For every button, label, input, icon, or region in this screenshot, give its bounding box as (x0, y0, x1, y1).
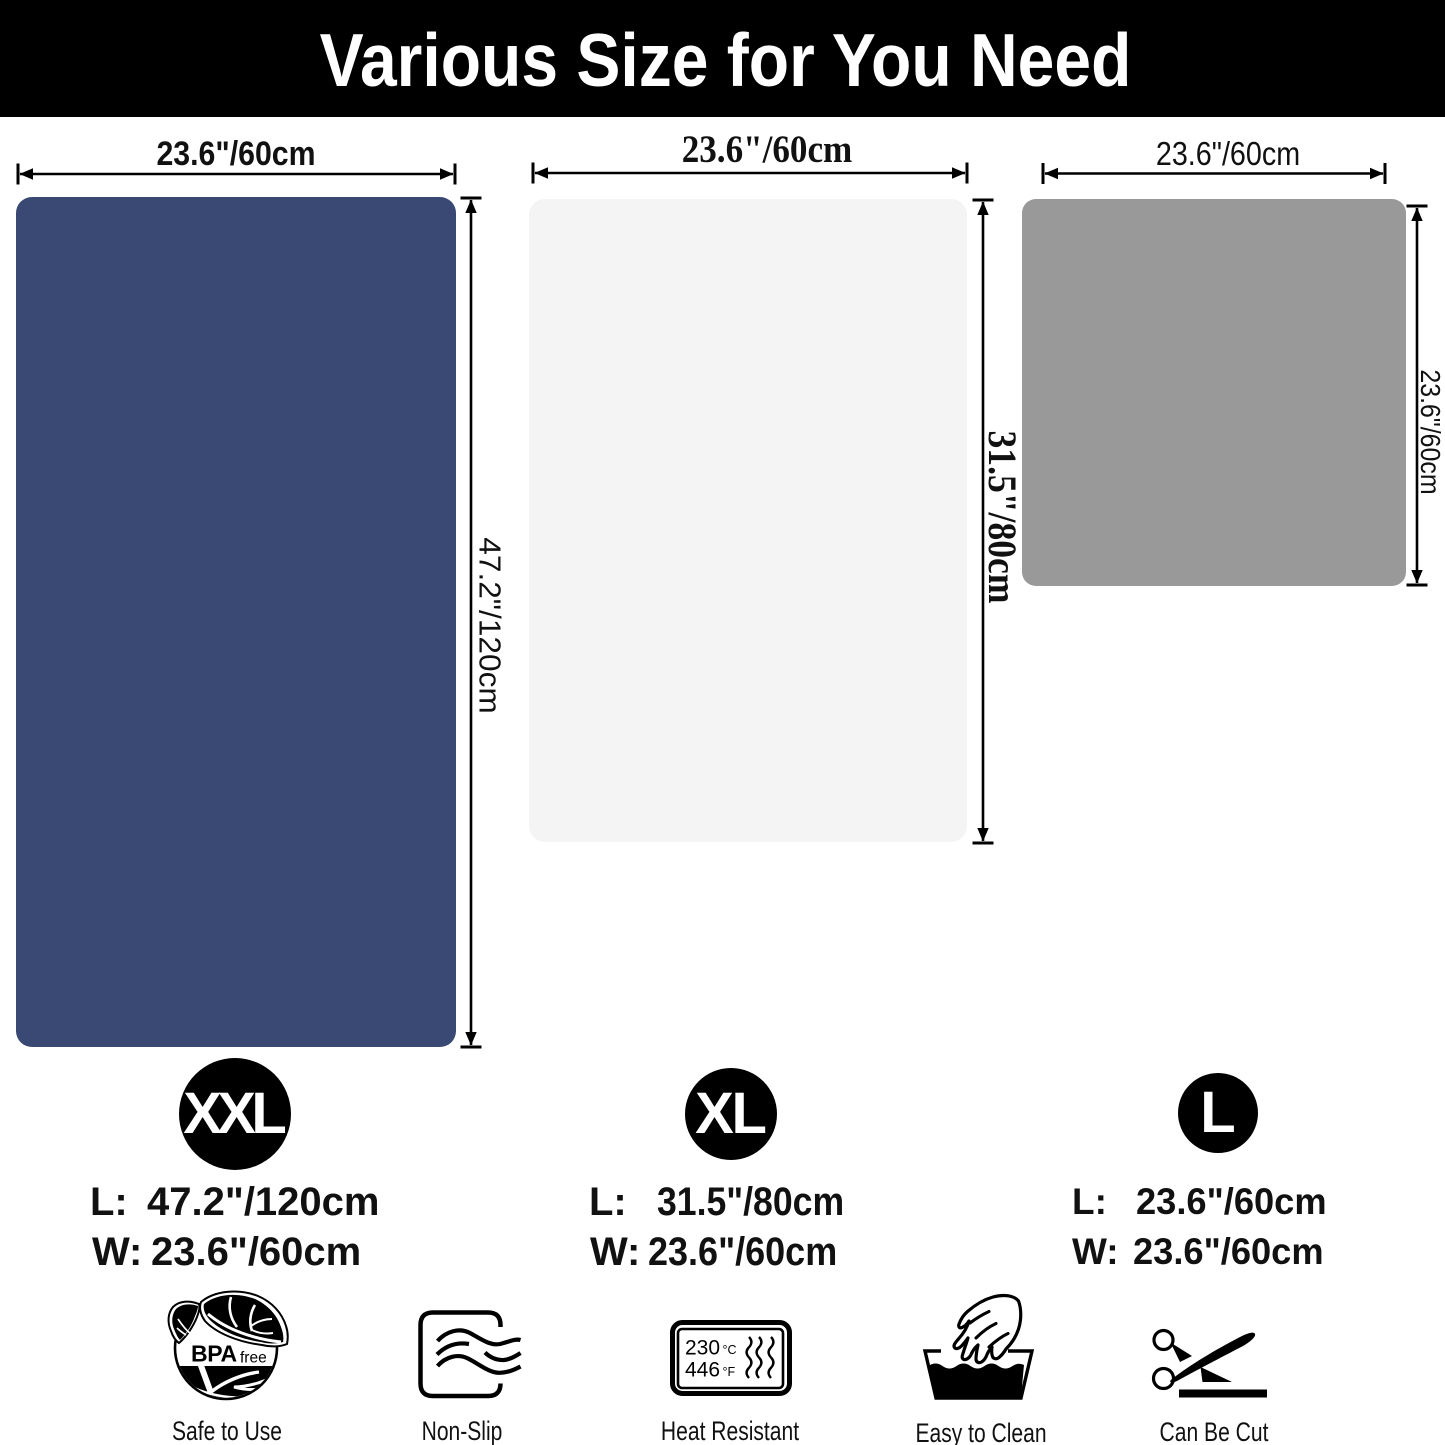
svg-text:BPA: BPA (191, 1341, 237, 1367)
svg-text:free: free (240, 1350, 267, 1367)
svg-text:446: 446 (685, 1359, 720, 1382)
svg-text:°C: °C (723, 1343, 737, 1357)
svg-text:°F: °F (723, 1365, 736, 1379)
svg-text:230: 230 (685, 1337, 720, 1360)
